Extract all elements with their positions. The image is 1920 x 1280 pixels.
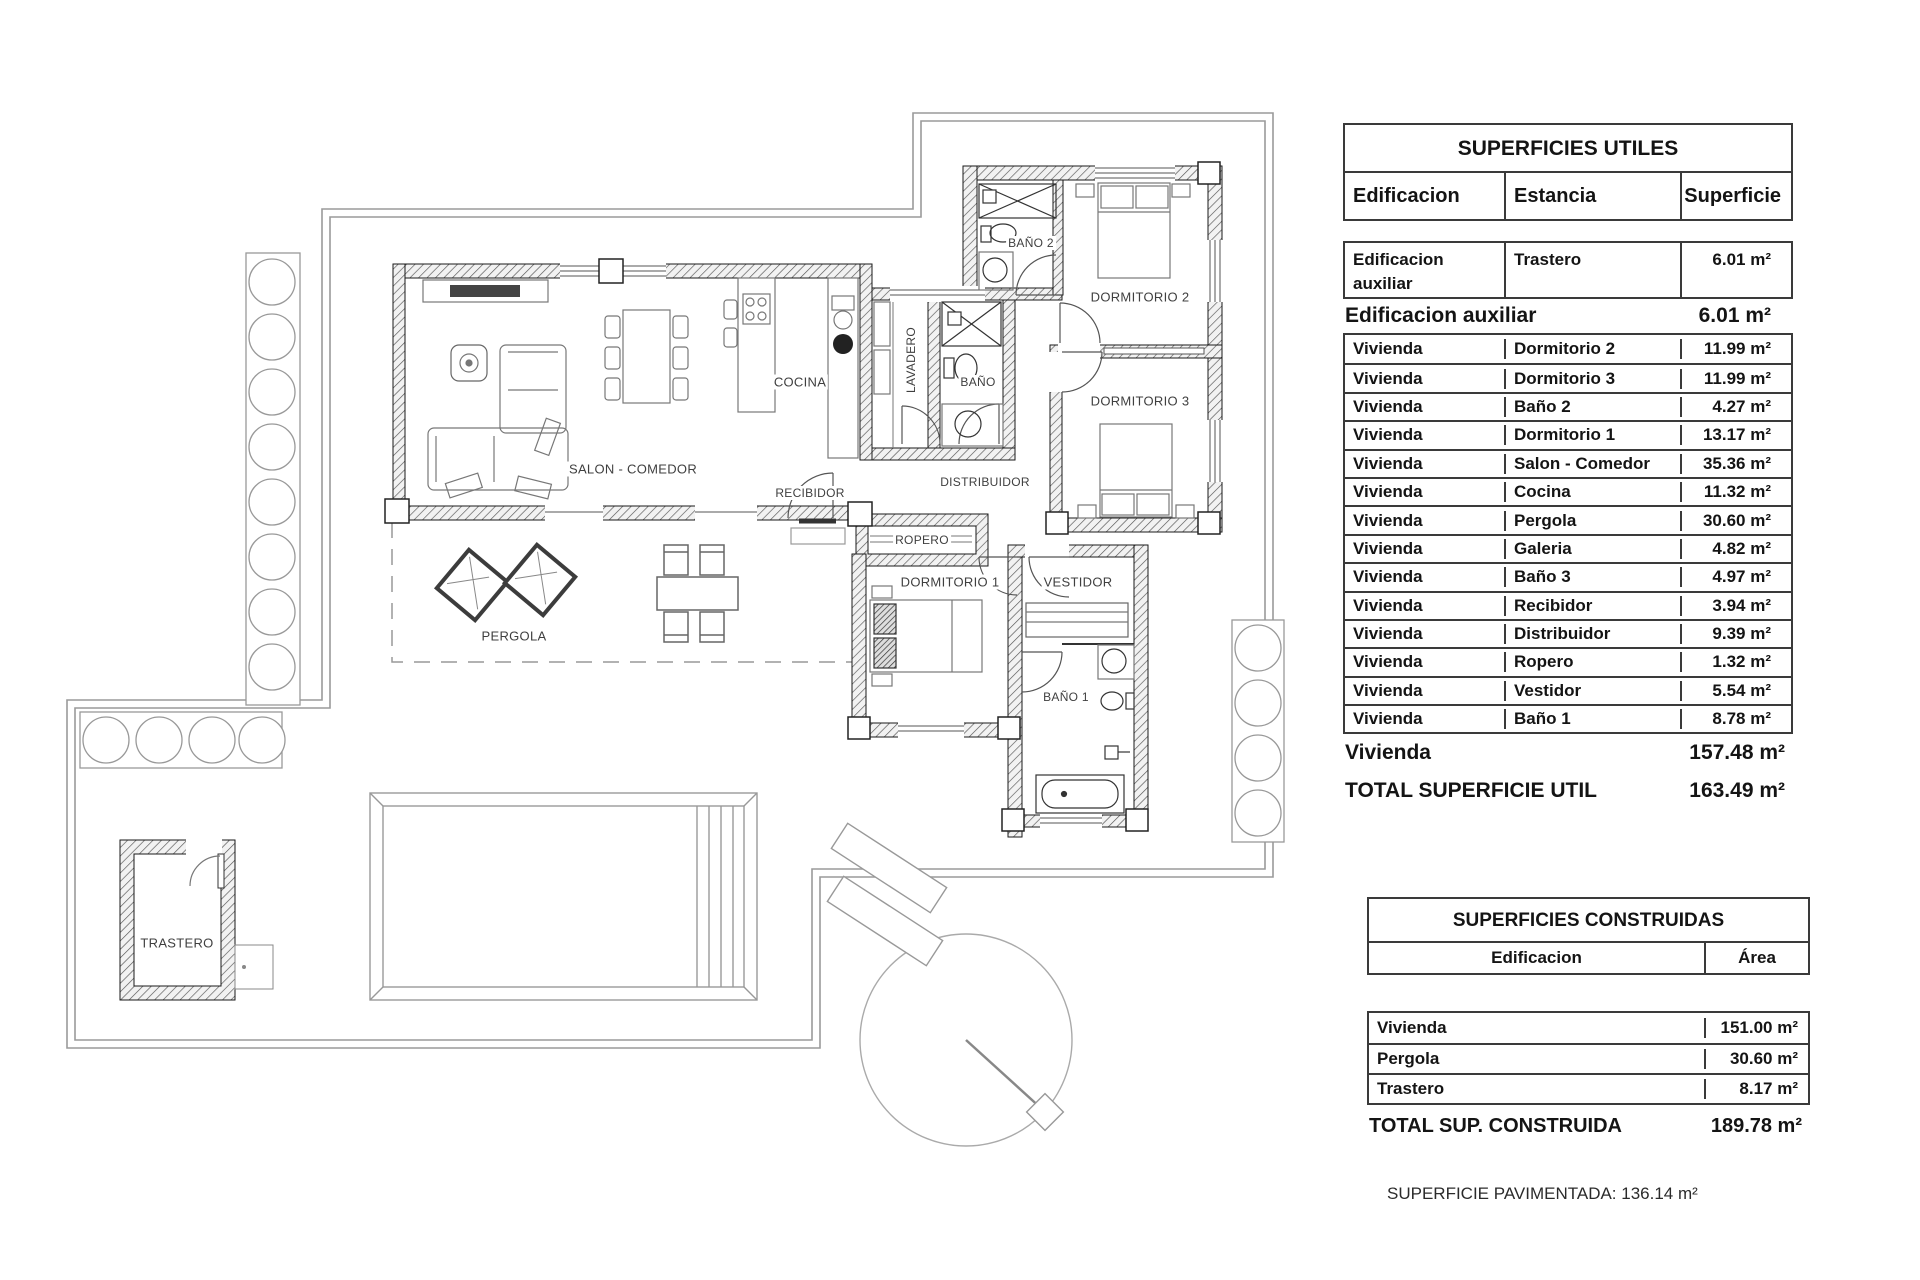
trastero-building xyxy=(120,836,273,1000)
table-row: ViviendaPergola30.60 m² xyxy=(1345,505,1791,533)
table-row: ViviendaCocina11.32 m² xyxy=(1345,477,1791,505)
room-label-bano: BAÑO xyxy=(958,375,997,389)
table-row: Edificacion auxiliar Trastero 6.01 m² xyxy=(1343,241,1793,299)
construidas-grid: Vivienda151.00 m² Pergola30.60 m² Traste… xyxy=(1367,1011,1810,1105)
table-row: ViviendaDistribuidor9.39 m² xyxy=(1345,619,1791,647)
table-row: ViviendaRopero1.32 m² xyxy=(1345,647,1791,675)
header-edificacion: Edificacion xyxy=(1369,943,1704,973)
paved-surface-note: SUPERFICIE PAVIMENTADA: 136.14 m² xyxy=(1387,1184,1698,1204)
table-row: ViviendaGaleria4.82 m² xyxy=(1345,534,1791,562)
room-label-dormitorio1: DORMITORIO 1 xyxy=(899,575,1002,590)
header-edificacion: Edificacion xyxy=(1345,173,1504,219)
vivienda-summary-row: Vivienda 157.48 m² xyxy=(1343,734,1793,772)
room-label-lavadero: LAVADERO xyxy=(904,325,918,395)
table-title: SUPERFICIES UTILES xyxy=(1343,123,1793,173)
room-label-bano1: BAÑO 1 xyxy=(1041,690,1091,704)
room-label-dormitorio3: DORMITORIO 3 xyxy=(1089,394,1192,409)
table-header-row: Edificacion Área xyxy=(1367,943,1810,975)
room-label-pergola: PERGOLA xyxy=(480,629,549,644)
header-area: Área xyxy=(1704,943,1808,973)
table-row: Trastero8.17 m² xyxy=(1369,1073,1808,1103)
room-label-vestidor: VESTIDOR xyxy=(1042,575,1115,590)
total-construida-row: TOTAL SUP. CONSTRUIDA 189.78 m² xyxy=(1367,1107,1810,1145)
room-label-trastero: TRASTERO xyxy=(138,936,215,951)
table-row: ViviendaSalon - Comedor35.36 m² xyxy=(1345,449,1791,477)
room-label-salon-comedor: SALON - COMEDOR xyxy=(567,462,699,477)
room-label-recibidor: RECIBIDOR xyxy=(773,486,846,500)
rooms-grid: ViviendaDormitorio 211.99 m² ViviendaDor… xyxy=(1343,333,1793,734)
superficies-construidas-table: SUPERFICIES CONSTRUIDAS Edificacion Área… xyxy=(1367,897,1810,1145)
table-title: SUPERFICIES CONSTRUIDAS xyxy=(1367,897,1810,943)
table-row: Vivienda151.00 m² xyxy=(1369,1013,1808,1043)
superficies-utiles-table: SUPERFICIES UTILES Edificacion Estancia … xyxy=(1343,123,1793,810)
table-row: ViviendaRecibidor3.94 m² xyxy=(1345,591,1791,619)
table-row: ViviendaDormitorio 211.99 m² xyxy=(1345,335,1791,363)
table-row: ViviendaBaño 34.97 m² xyxy=(1345,562,1791,590)
floor-plan-page: BAÑO 2 DORMITORIO 2 LAVADERO BAÑO COCINA… xyxy=(0,0,1920,1280)
pool xyxy=(370,793,757,1000)
room-label-dormitorio2: DORMITORIO 2 xyxy=(1089,290,1192,305)
aux-summary-row: Edificacion auxiliar 6.01 m² xyxy=(1343,299,1793,333)
table-row: ViviendaVestidor5.54 m² xyxy=(1345,676,1791,704)
total-superficie-util-row: TOTAL SUPERFICIE UTIL 163.49 m² xyxy=(1343,772,1793,810)
table-row: ViviendaBaño 24.27 m² xyxy=(1345,392,1791,420)
table-header-row: Edificacion Estancia Superficie xyxy=(1343,173,1793,221)
table-row: ViviendaDormitorio 311.99 m² xyxy=(1345,363,1791,391)
table-row: ViviendaDormitorio 113.17 m² xyxy=(1345,420,1791,448)
room-label-ropero: ROPERO xyxy=(893,533,951,547)
room-label-distribuidor: DISTRIBUIDOR xyxy=(938,475,1032,489)
rotary-clothesline xyxy=(827,823,1072,1146)
header-superficie: Superficie xyxy=(1680,173,1791,219)
table-row: Pergola30.60 m² xyxy=(1369,1043,1808,1073)
room-label-cocina: COCINA xyxy=(772,375,828,390)
header-estancia: Estancia xyxy=(1504,173,1680,219)
table-row: ViviendaBaño 18.78 m² xyxy=(1345,704,1791,732)
pergola-area xyxy=(392,522,852,662)
room-label-bano2: BAÑO 2 xyxy=(1006,236,1056,250)
